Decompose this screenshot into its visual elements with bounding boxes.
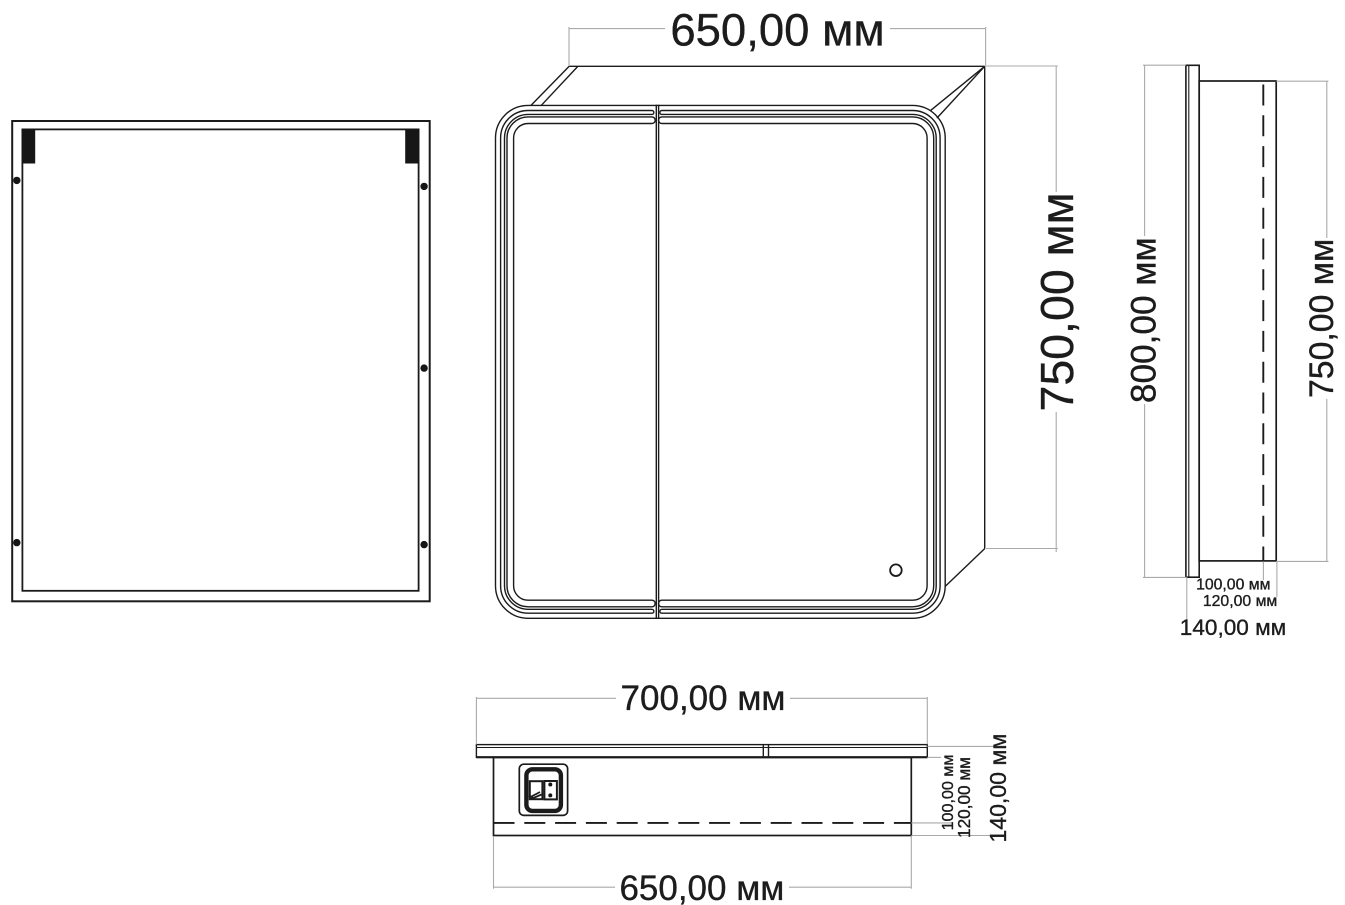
svg-text:120,00 мм: 120,00 мм (954, 757, 974, 838)
svg-text:800,00 мм: 800,00 мм (1124, 237, 1163, 403)
svg-text:750,00 мм: 750,00 мм (1303, 239, 1341, 398)
svg-text:120,00 мм: 120,00 мм (1203, 593, 1277, 610)
svg-text:650,00 мм: 650,00 мм (619, 869, 784, 905)
svg-text:700,00 мм: 700,00 мм (621, 679, 786, 718)
svg-text:140,00 мм: 140,00 мм (985, 734, 1011, 843)
svg-text:650,00 мм: 650,00 мм (670, 5, 884, 56)
svg-text:750,00 мм: 750,00 мм (1031, 192, 1083, 411)
svg-text:100,00 мм: 100,00 мм (1196, 577, 1270, 594)
svg-text:140,00 мм: 140,00 мм (1180, 615, 1286, 640)
